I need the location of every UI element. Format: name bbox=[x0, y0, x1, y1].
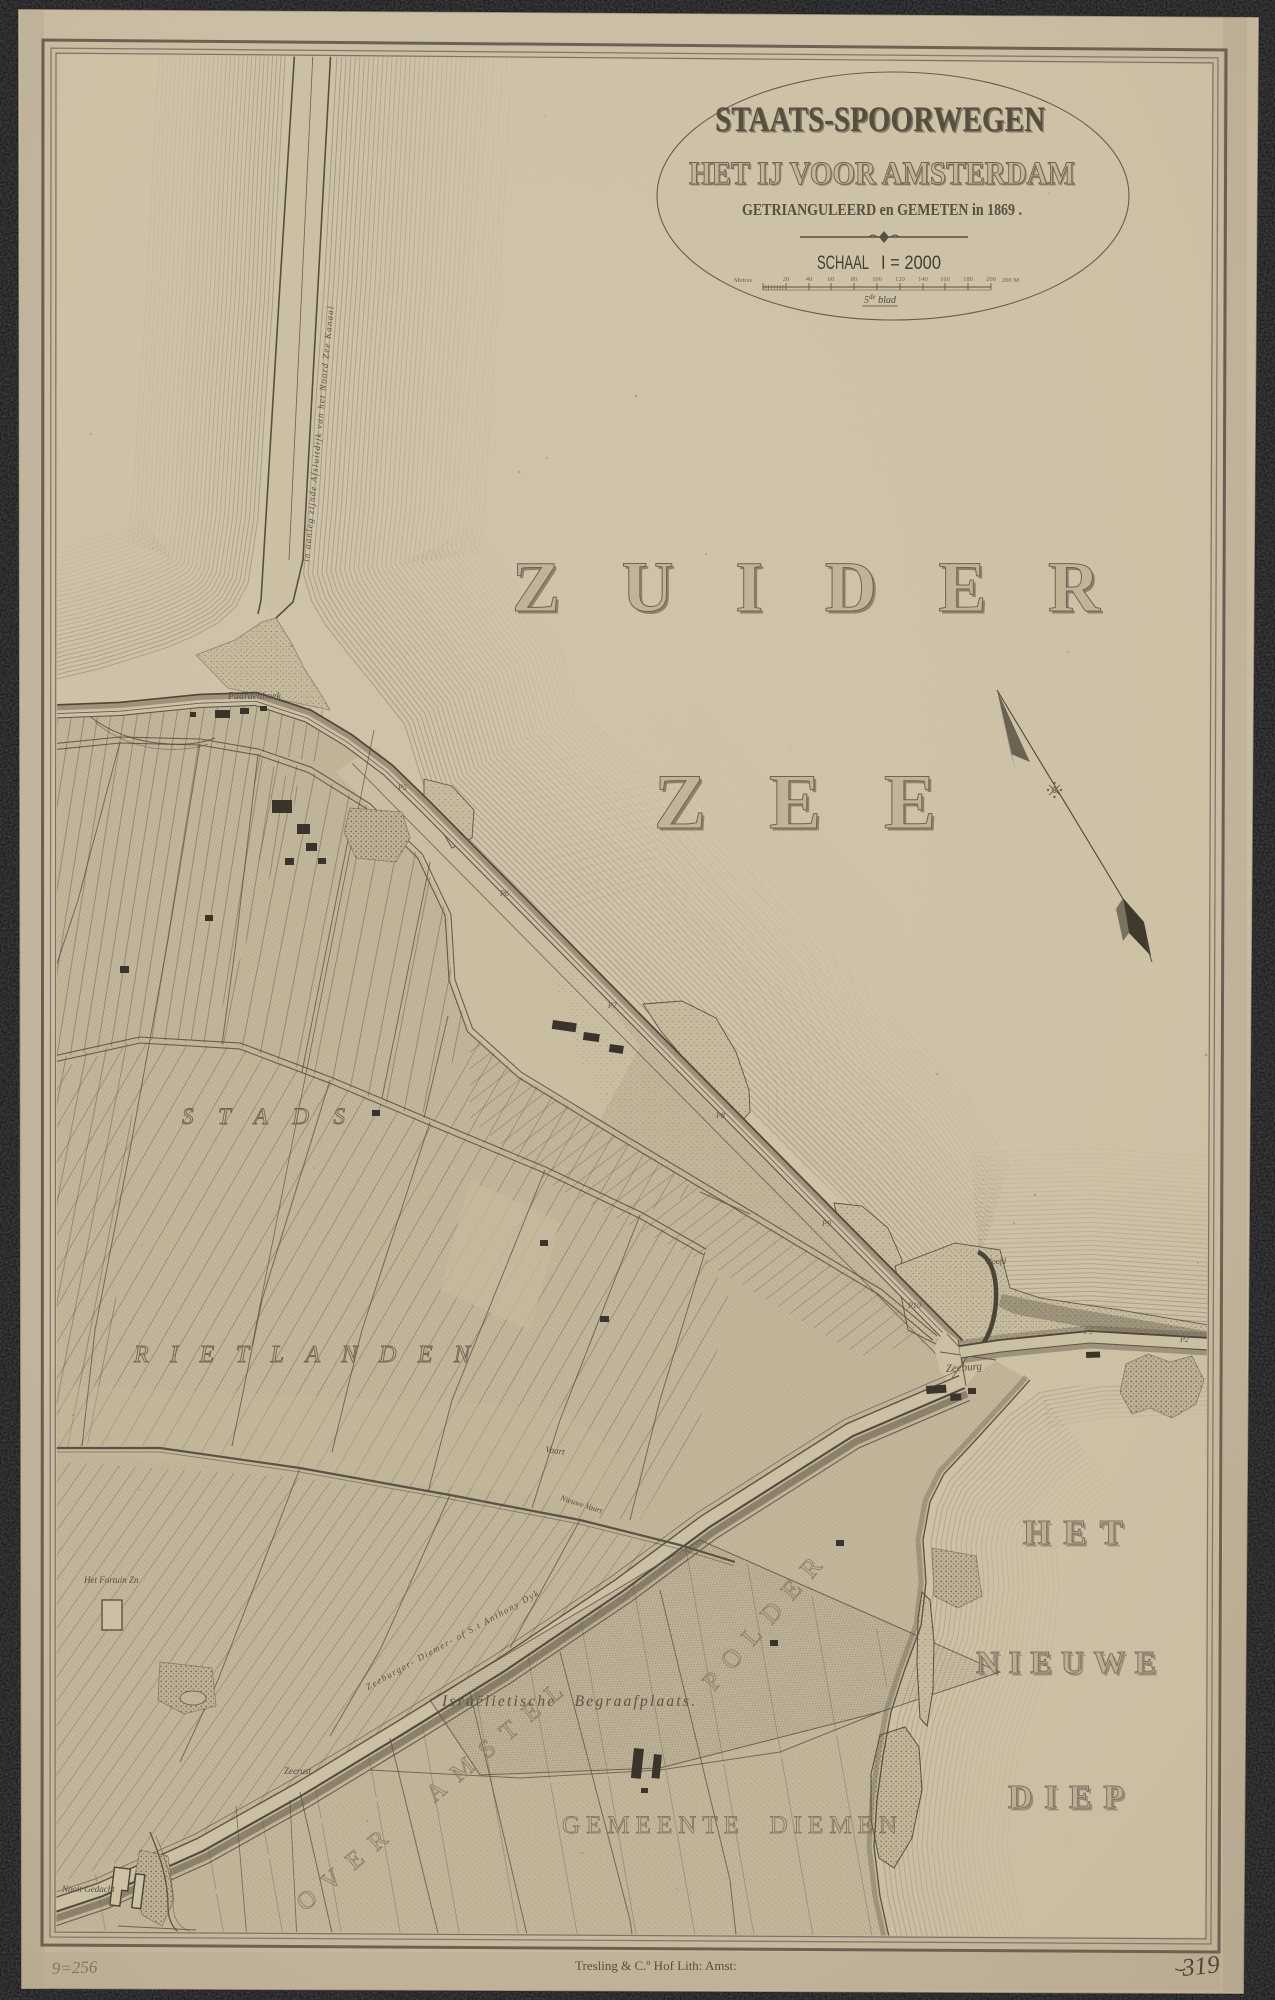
svg-text:P10: P10 bbox=[907, 1301, 921, 1310]
svg-text:Nooit Gedacht: Nooit Gedacht bbox=[61, 1884, 115, 1894]
svg-text:P7: P7 bbox=[607, 1001, 618, 1010]
svg-text:P5: P5 bbox=[397, 783, 407, 792]
svg-text:200 M: 200 M bbox=[1002, 277, 1019, 284]
svg-text:Zeerust: Zeerust bbox=[284, 1766, 311, 1776]
svg-text:I = 2000: I = 2000 bbox=[881, 253, 941, 274]
svg-text:100: 100 bbox=[872, 276, 882, 283]
svg-text:Tresling & C.º Hof Lith: Amst:: Tresling & C.º Hof Lith: Amst: bbox=[575, 1958, 737, 1973]
svg-text:9=256: 9=256 bbox=[51, 1957, 98, 1978]
svg-text:P2: P2 bbox=[1179, 1335, 1189, 1344]
svg-text:P3: P3 bbox=[1083, 1327, 1093, 1336]
svg-text:180: 180 bbox=[963, 276, 973, 283]
svg-text:160: 160 bbox=[940, 276, 950, 283]
svg-text:40: 40 bbox=[806, 276, 813, 283]
svg-text:SCHAAL: SCHAAL bbox=[817, 253, 869, 274]
svg-text:GEMEENTE DIEMEN: GEMEENTE DIEMEN bbox=[562, 1812, 897, 1839]
svg-text:P9: P9 bbox=[821, 1219, 831, 1228]
svg-text:80: 80 bbox=[851, 276, 858, 283]
svg-text:319: 319 bbox=[1180, 1951, 1222, 1982]
svg-text:P8: P8 bbox=[715, 1111, 725, 1120]
svg-text:120: 120 bbox=[895, 276, 905, 283]
svg-text:STAATS-SPOORWEGEN: STAATS-SPOORWEGEN bbox=[715, 99, 1045, 139]
svg-text:P6: P6 bbox=[499, 889, 509, 898]
svg-text:HET: HET bbox=[1023, 1513, 1123, 1552]
svg-text:60: 60 bbox=[828, 276, 835, 283]
svg-text:Zeeburg: Zeeburg bbox=[945, 1360, 983, 1375]
svg-text:Israëlietische Begraafplaats: Israëlietische Begraafplaats. bbox=[441, 1693, 695, 1710]
svg-text:GETRIANGULEERD en GEMETEN in 1: GETRIANGULEERD en GEMETEN in 1869 . bbox=[742, 200, 1022, 219]
svg-text:Paardenhoek: Paardenhoek bbox=[227, 691, 282, 702]
svg-text:HET IJ VOOR AMSTERDAM: HET IJ VOOR AMSTERDAM bbox=[689, 156, 1075, 192]
svg-text:20: 20 bbox=[783, 276, 790, 283]
svg-text:140: 140 bbox=[918, 276, 928, 283]
svg-text:200: 200 bbox=[986, 276, 996, 283]
svg-text:5de blad: 5de blad bbox=[864, 293, 897, 306]
svg-text:ZEE: ZEE bbox=[654, 758, 936, 845]
svg-text:Het Fortuin Zn: Het Fortuin Zn bbox=[83, 1575, 139, 1585]
svg-text:Metres: Metres bbox=[734, 277, 753, 284]
svg-text:Hoofd: Hoofd bbox=[985, 1257, 1007, 1266]
